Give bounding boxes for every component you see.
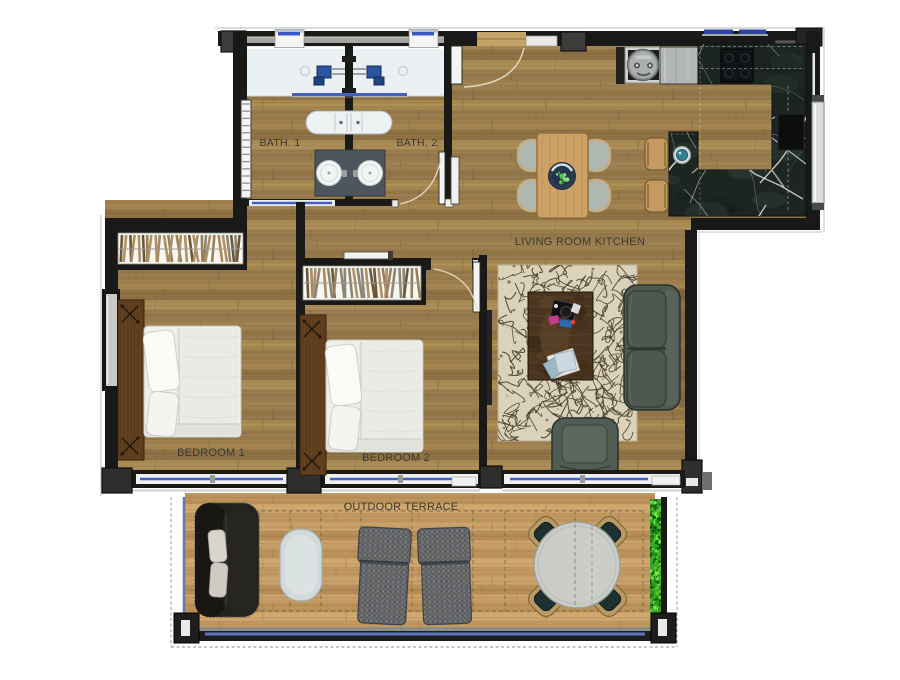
svg-text:BEDROOM 2: BEDROOM 2 — [362, 452, 430, 464]
svg-text:LIVING ROOM KITCHEN: LIVING ROOM KITCHEN — [515, 236, 645, 248]
svg-text:OUTDOOR TERRACE: OUTDOOR TERRACE — [344, 501, 459, 513]
svg-text:BATH. 2: BATH. 2 — [397, 137, 438, 149]
svg-text:BATH. 1: BATH. 1 — [260, 137, 301, 149]
svg-text:BEDROOM 1: BEDROOM 1 — [177, 447, 245, 459]
